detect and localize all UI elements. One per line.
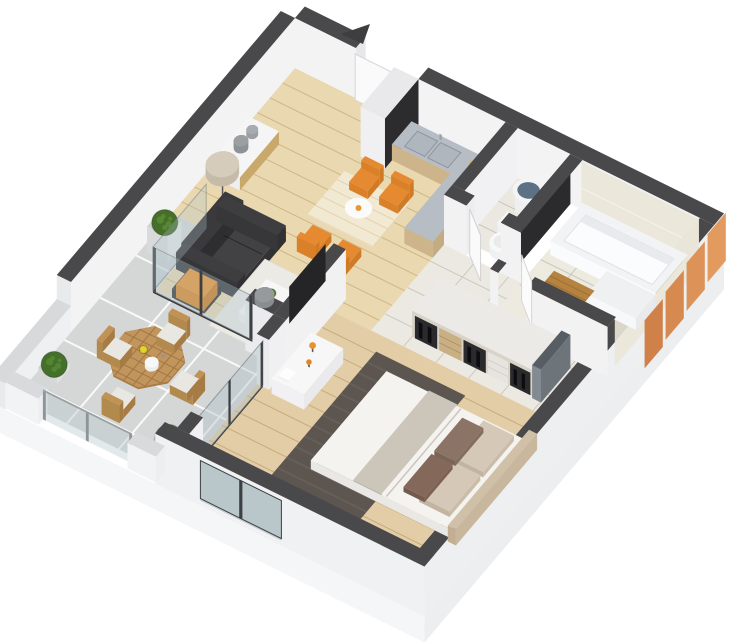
terrace-bush-west [41,351,67,377]
bedroom-glass-post-2 [228,379,230,426]
wardrobe-clothes-1b [428,326,432,343]
wardrobe-clothes-1a [419,322,423,339]
wardrobe-clothes-3a [467,346,471,363]
bedroom-glass-post-1 [261,341,263,388]
wardrobe-clothes-5b [522,373,525,390]
croissant [356,205,362,211]
glass-door-post-2 [200,270,203,315]
balustrade-post-1 [43,391,46,420]
dresser-flower-1 [309,342,316,349]
table-jug [145,357,159,372]
balustrade-post-2 [86,413,89,442]
glass-door-post-3 [249,295,252,340]
wardrobe-clothes-3b [476,350,480,367]
sideboard-vase-small [246,125,258,139]
table-cup-1 [162,354,165,357]
partition-vase [255,287,275,308]
floor-lamp-shade [206,151,240,186]
sideboard-vase-large [234,135,249,154]
dresser-flower-2 [306,359,312,365]
wardrobe-clothes-5a [514,369,517,386]
floorplan-svg [0,0,733,644]
apartment-3d-floorplan [0,0,733,644]
bedroom-window-mullion [239,480,242,520]
table-flowers-yellow [139,345,147,353]
